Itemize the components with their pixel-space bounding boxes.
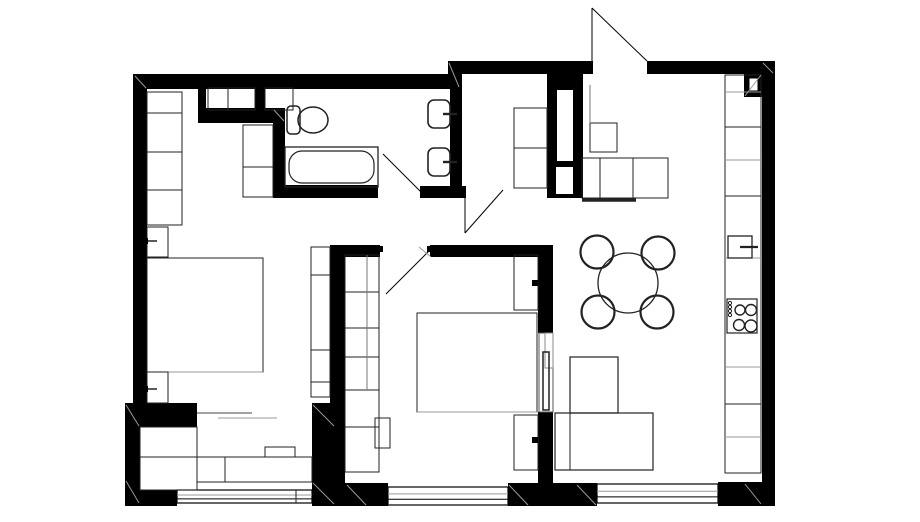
divider-bed2-living-upper: [538, 245, 553, 333]
window2-left-band: [345, 483, 388, 506]
window-bedroom1: [177, 490, 312, 503]
top-wall-right: [647, 61, 775, 74]
niche-bar-b: [255, 85, 265, 110]
bed2-sconce-north: [532, 280, 538, 286]
bed2-sconce-south: [532, 437, 538, 443]
niche-bar-a: [198, 85, 206, 110]
floor-plan-canvas: [0, 0, 920, 522]
tv-niche: [539, 333, 553, 412]
south-pier: [508, 483, 597, 506]
top-wall-mid: [460, 61, 593, 74]
window-living: [597, 484, 718, 503]
bed2-door-jamb-left: [378, 246, 383, 252]
shaft-niche-upper: [557, 90, 573, 161]
bed1-sconce-south: [142, 386, 148, 392]
bathroom-left-wall: [273, 108, 285, 198]
right-wall: [762, 61, 775, 506]
shaft-niche-lower: [556, 167, 573, 194]
washroom-east-wall: [450, 74, 462, 190]
top-wall-left: [133, 74, 448, 89]
divider-bed1-bed2: [330, 245, 345, 405]
washroom-bottom-stub: [420, 186, 466, 198]
mid-pier: [312, 403, 345, 506]
divider-bed2-living-lower: [538, 412, 553, 483]
bed1-sconce-north: [142, 238, 148, 244]
floor-plan: [0, 0, 920, 522]
window-bedroom2: [388, 487, 508, 505]
